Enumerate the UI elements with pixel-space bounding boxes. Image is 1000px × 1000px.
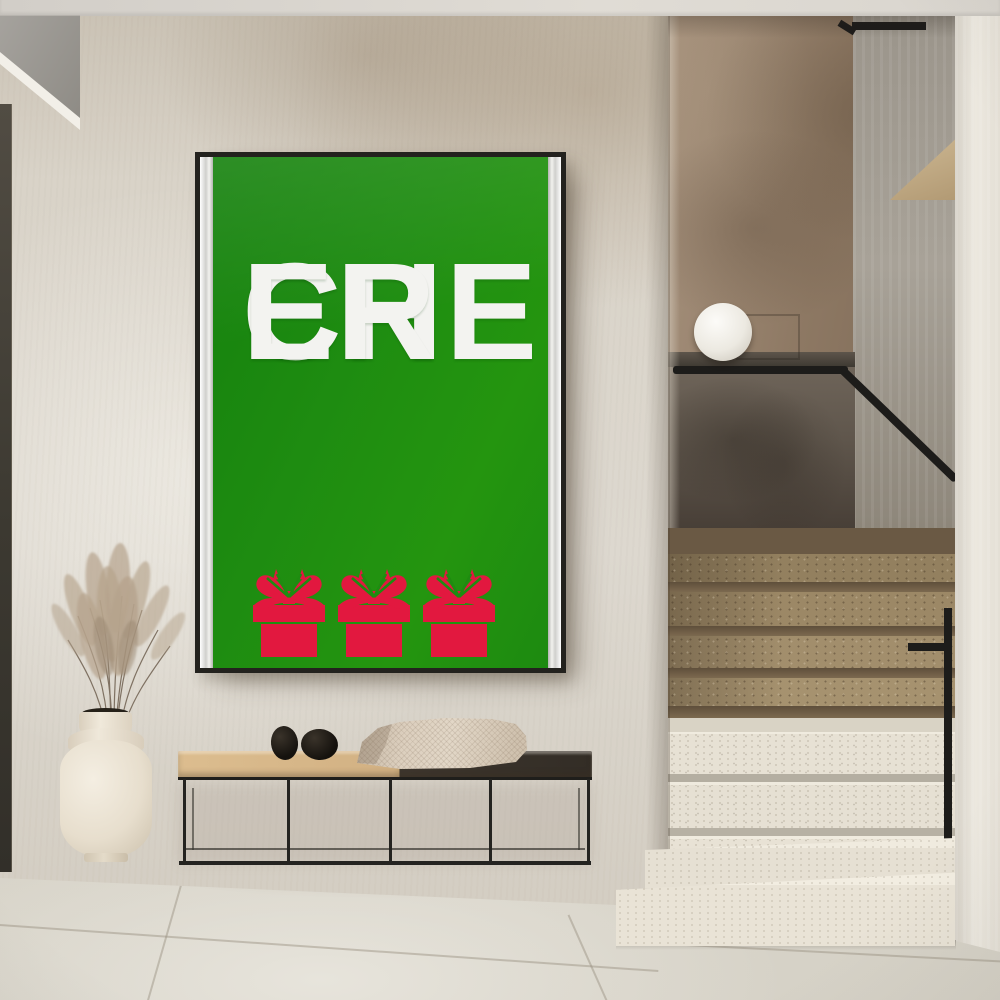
ceiling	[0, 0, 1000, 16]
step-shadow	[668, 774, 955, 782]
poster-mat-right	[548, 157, 561, 668]
bench-leg	[287, 779, 290, 865]
floor-tile-seam	[139, 883, 182, 1000]
step-face	[668, 678, 955, 706]
vase-body	[60, 740, 152, 856]
step-tread	[668, 626, 955, 636]
bench-wall-shadow	[178, 784, 592, 864]
step-tread	[668, 706, 955, 718]
cheer-poster-frame: CHE ER	[195, 152, 566, 673]
bench-back-leg	[578, 788, 580, 850]
bench-bottom-rail	[179, 861, 591, 865]
step-face	[668, 732, 955, 774]
floor-tile-seam	[0, 924, 658, 972]
handrail-bracket	[908, 643, 952, 651]
step-tread	[668, 582, 955, 592]
bench-top-rail	[178, 777, 592, 780]
vase-foot	[84, 853, 128, 862]
gift-icon	[338, 567, 410, 657]
bench-leg	[489, 779, 492, 865]
bench-leg	[183, 779, 186, 865]
wall-corner-shadow	[646, 16, 670, 916]
upper-steps	[668, 528, 955, 718]
poster-mat-left	[200, 157, 213, 668]
bench-back-leg	[192, 788, 194, 850]
step-tread	[668, 668, 955, 678]
stairwell	[668, 16, 955, 946]
step-face	[668, 554, 955, 582]
hallway-scene: CHE ER	[0, 0, 1000, 1000]
handrail-horizontal	[673, 366, 848, 374]
sphere-lamp	[694, 303, 752, 361]
poster-artwork: CHE ER	[213, 157, 548, 668]
poster-text-line2: ER	[242, 257, 438, 367]
gift-row	[253, 567, 533, 659]
poster: CHE ER	[200, 157, 561, 668]
step-face	[668, 782, 955, 828]
right-wall-column	[955, 16, 1000, 1000]
bench-leg	[389, 779, 392, 865]
gift-icon	[423, 567, 495, 657]
gift-icon	[253, 567, 325, 657]
step-face	[668, 636, 955, 668]
bench-leg	[587, 779, 590, 865]
vase	[58, 704, 154, 864]
door-frame	[0, 104, 12, 872]
stairwell-top-shadow	[668, 16, 955, 38]
stair-half-wall	[668, 367, 855, 528]
step-shadow	[668, 828, 955, 836]
bench-back-rail	[186, 848, 585, 850]
step-face	[668, 592, 955, 626]
